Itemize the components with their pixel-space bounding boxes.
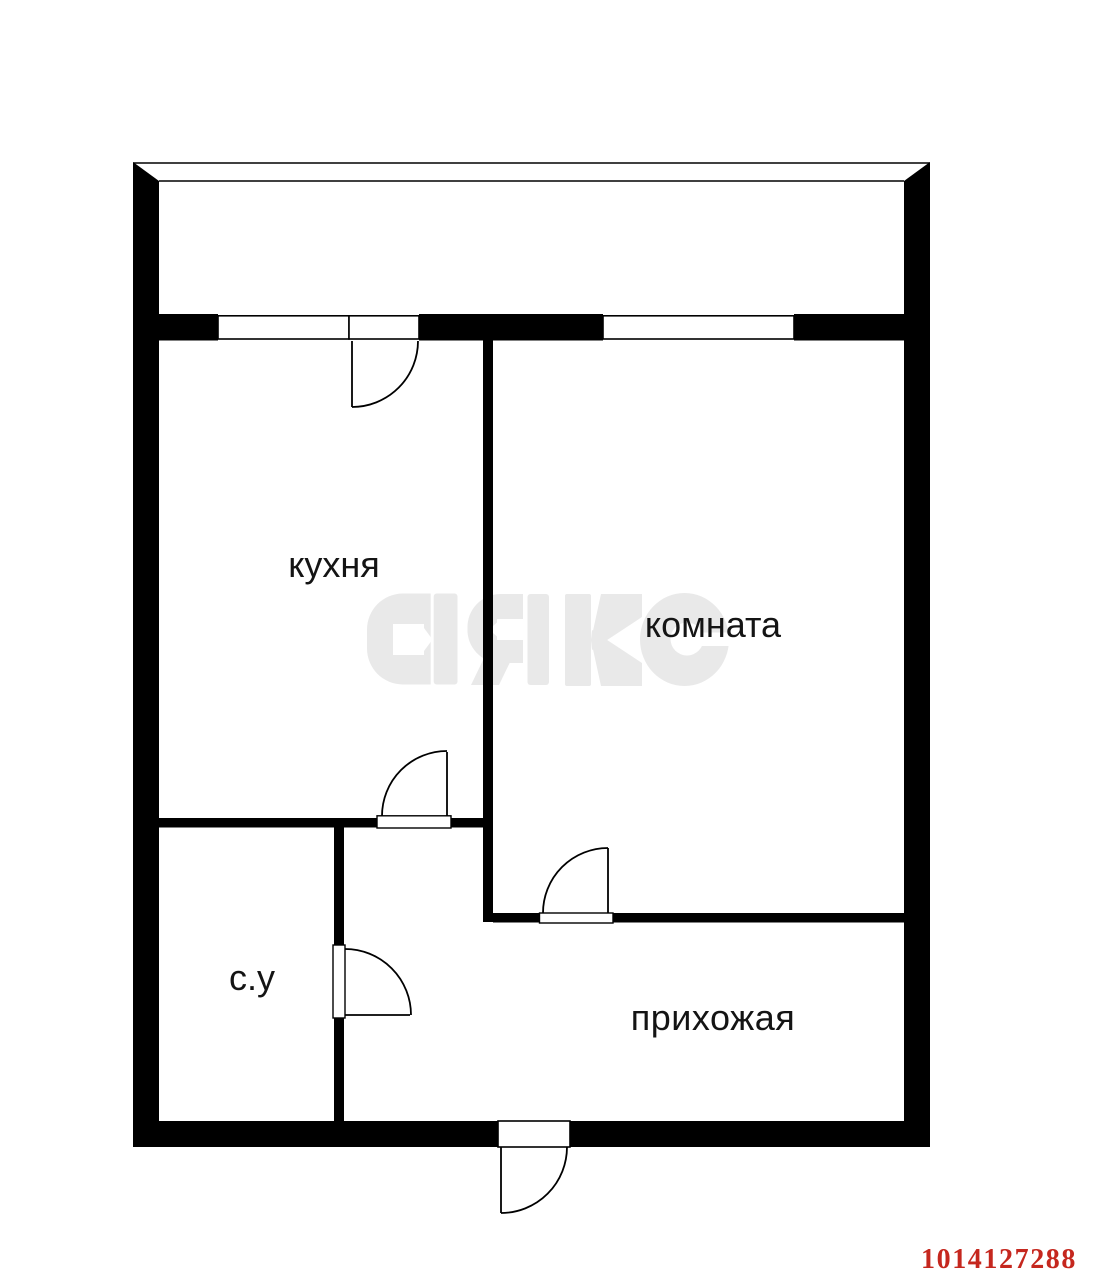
svg-text:1014127288: 1014127288 xyxy=(921,1244,1077,1275)
svg-text:прихожая: прихожая xyxy=(631,997,795,1038)
svg-text:кухня: кухня xyxy=(288,544,380,585)
svg-text:комната: комната xyxy=(645,604,782,645)
svg-text:с.у: с.у xyxy=(229,957,275,998)
